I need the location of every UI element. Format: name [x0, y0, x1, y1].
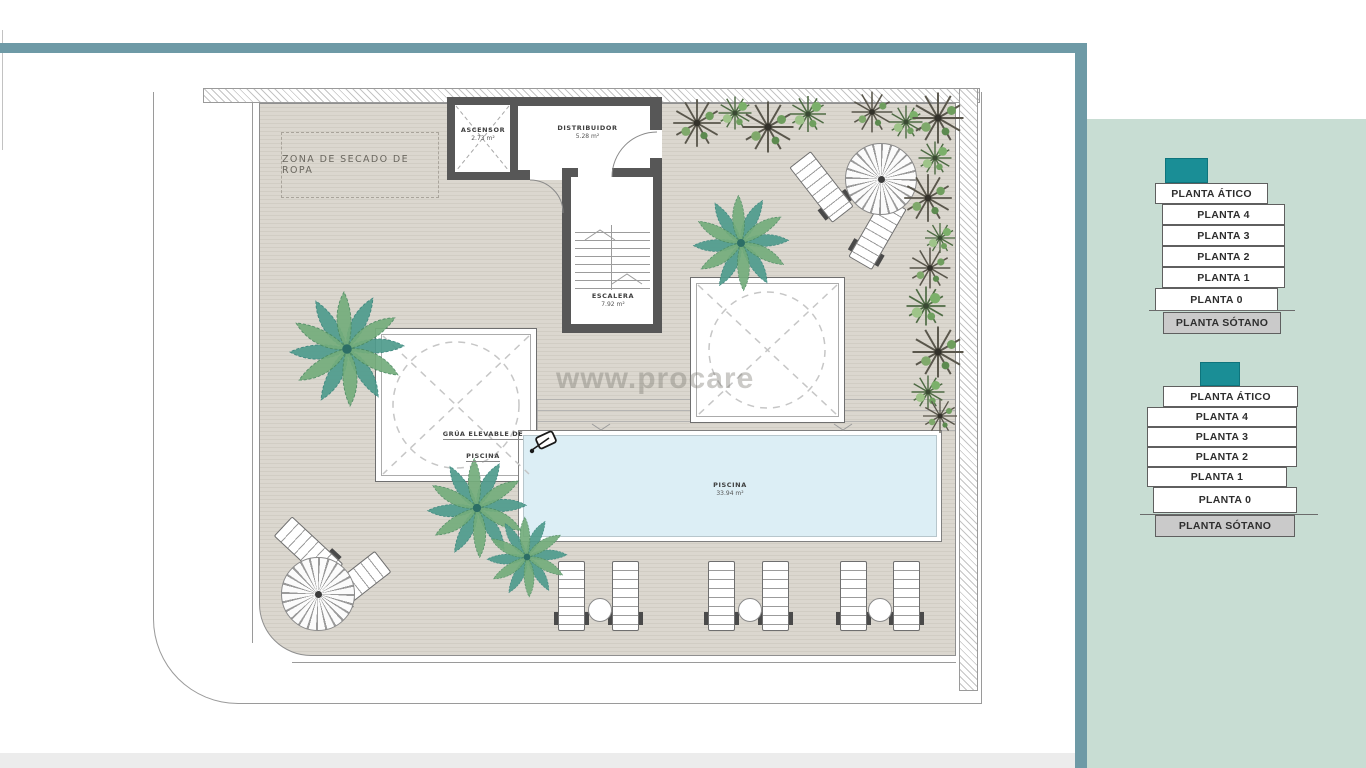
floor-stack-bottom: PLANTA ÁTICO PLANTA 4 PLANTA 3 PLANTA 2 …: [1140, 362, 1320, 542]
sun-lounger: [840, 561, 867, 631]
stairs-label: ESCALERA 7.92 m²: [577, 292, 649, 309]
floor-button-4[interactable]: PLANTA 4: [1162, 204, 1285, 225]
drying-zone-label: ZONA DE SECADO DE ROPA: [282, 154, 438, 176]
elevator-label: ASCENSOR 2.73 m²: [452, 126, 514, 143]
room-area: 2.73 m²: [452, 135, 514, 143]
vertical-accent-bar: [1075, 43, 1087, 768]
floor-button-1[interactable]: PLANTA 1: [1162, 267, 1285, 288]
floor-button-sotano[interactable]: PLANTA SÓTANO: [1155, 515, 1295, 537]
deck-edge-line: [292, 662, 956, 663]
skylight-square-right: [690, 277, 845, 423]
room-area: 5.28 m²: [525, 133, 650, 141]
sun-lounger: [708, 561, 735, 631]
pool-label: PISCINA 33.94 m²: [690, 481, 770, 498]
ground-line: [1149, 310, 1295, 311]
roof-block: [1200, 362, 1240, 386]
watermark: www.procare: [556, 362, 754, 396]
sun-lounger: [762, 561, 789, 631]
roof-block: [1165, 158, 1208, 183]
room-name: ASCENSOR: [452, 126, 514, 135]
side-table: [588, 598, 612, 622]
room-area: 33.94 m²: [690, 490, 770, 498]
room-name: PISCINA: [690, 481, 770, 490]
floor-button-2[interactable]: PLANTA 2: [1147, 447, 1297, 467]
sun-lounger: [893, 561, 920, 631]
floor-stack-top: PLANTA ÁTICO PLANTA 4 PLANTA 3 PLANTA 2 …: [1147, 158, 1297, 340]
sun-lounger: [558, 561, 585, 631]
floor-button-atico[interactable]: PLANTA ÁTICO: [1163, 386, 1298, 407]
floor-button-0[interactable]: PLANTA 0: [1153, 487, 1297, 513]
side-table: [738, 598, 762, 622]
wall: [518, 170, 530, 180]
room-name: DISTRIBUIDOR: [525, 124, 650, 133]
wall: [650, 97, 662, 130]
stair-doorway: [578, 168, 612, 177]
floor-button-1[interactable]: PLANTA 1: [1147, 467, 1287, 487]
parapet-hatch-right: [959, 88, 978, 691]
floor-button-3[interactable]: PLANTA 3: [1162, 225, 1285, 246]
stair-treads: [575, 225, 650, 290]
floor-button-0[interactable]: PLANTA 0: [1155, 288, 1278, 311]
floor-button-sotano[interactable]: PLANTA SÓTANO: [1163, 312, 1281, 334]
parasol: [281, 557, 355, 631]
deck-edge-line: [252, 103, 253, 643]
crane-label-text: GRÚA ELEVABLE DE PISCINA: [443, 430, 524, 462]
skylight-inner-frame: [696, 283, 839, 417]
floor-button-3[interactable]: PLANTA 3: [1147, 427, 1297, 447]
room-area: 7.92 m²: [577, 301, 649, 309]
sun-lounger: [612, 561, 639, 631]
drying-zone-box: ZONA DE SECADO DE ROPA: [281, 132, 439, 198]
parasol: [845, 143, 917, 215]
floor-button-4[interactable]: PLANTA 4: [1147, 407, 1297, 427]
floor-button-2[interactable]: PLANTA 2: [1162, 246, 1285, 267]
floor-button-atico[interactable]: PLANTA ÁTICO: [1155, 183, 1268, 204]
page-bottom-strip: [0, 753, 1075, 768]
page: ZONA DE SECADO DE ROPA: [0, 0, 1366, 768]
room-name: ESCALERA: [577, 292, 649, 301]
pool-crane-label: GRÚA ELEVABLE DE PISCINA: [428, 420, 538, 463]
top-accent-bar: [0, 43, 1087, 53]
side-table: [868, 598, 892, 622]
stair-center-line: [611, 225, 612, 290]
hall-label: DISTRIBUIDOR 5.28 m²: [525, 124, 650, 141]
wall: [518, 97, 662, 106]
